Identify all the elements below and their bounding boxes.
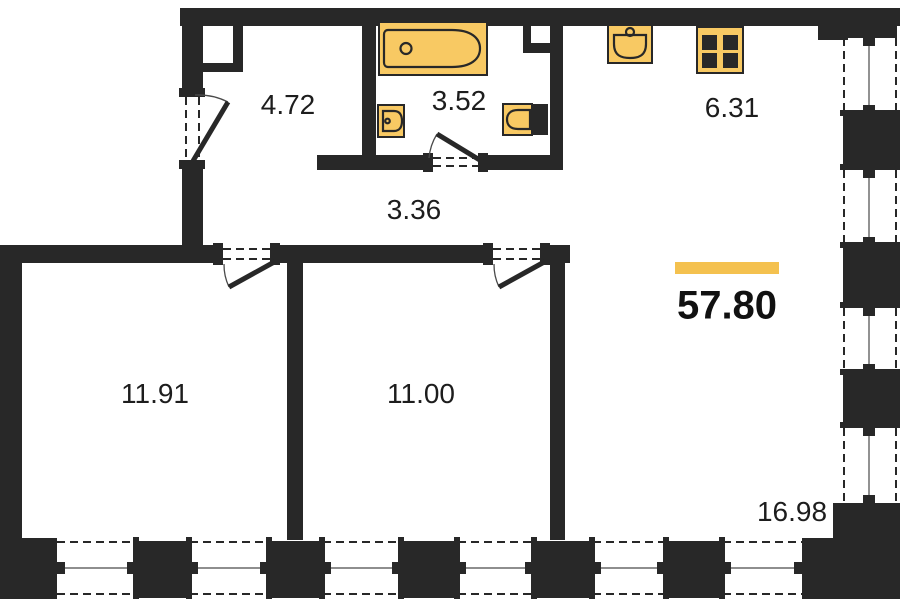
bathroom-door (429, 134, 483, 166)
room-label-bedroom-2: 11.00 (387, 378, 455, 410)
room-label-hallway: 4.72 (261, 89, 316, 121)
total-area-accent-bar (675, 262, 779, 274)
room-label-bedroom-1: 11.91 (121, 378, 189, 410)
room-label-bathroom: 3.52 (432, 85, 487, 117)
bedroom-1-door (223, 249, 276, 287)
window-frame-top (843, 26, 897, 38)
toilet-icon (503, 104, 548, 135)
window-wall-right (833, 26, 900, 599)
stove-icon (697, 27, 743, 73)
room-label-corridor: 3.36 (387, 194, 442, 226)
corner-right-lower (833, 503, 900, 599)
room-label-living-room: 16.98 (757, 496, 827, 528)
bathtub-icon (379, 22, 487, 75)
floor-plan: 4.72 3.52 6.31 3.36 11.91 11.00 16.98 57… (0, 0, 900, 599)
entrance-door (186, 95, 228, 161)
room-label-kitchen: 6.31 (705, 92, 760, 124)
bedroom-2-door (493, 249, 546, 287)
washbasin-icon (378, 105, 404, 137)
window-wall-bottom (57, 537, 900, 599)
kitchen-sink-icon (608, 25, 652, 63)
window-pillar (840, 110, 900, 428)
total-area-label: 57.80 (677, 284, 777, 329)
